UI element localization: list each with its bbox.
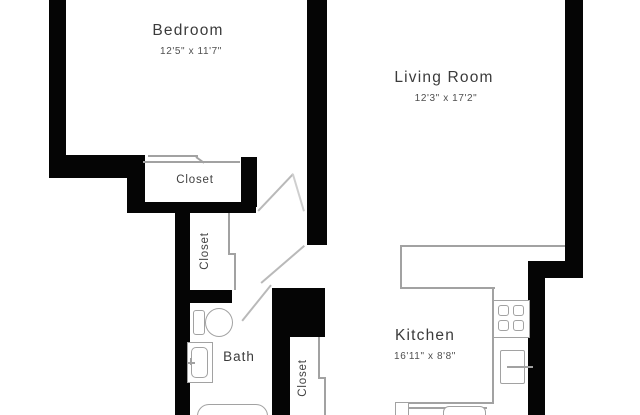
faucet-icon: [190, 358, 192, 365]
wall-kitchen-closet-left: [272, 288, 290, 415]
closet-door-line: [143, 161, 240, 163]
counter-end-cabinet: [395, 402, 409, 415]
burner-icon: [513, 320, 524, 331]
bedroom-dimensions: 12'5" x 11'7": [160, 46, 222, 57]
door-swing-living-hall: [257, 173, 293, 211]
counter-edge: [400, 287, 495, 289]
wall-bedroom-closet-right: [241, 157, 257, 207]
wall-kitchen-right: [528, 261, 545, 415]
door-swing-living-hall-arc: [292, 174, 305, 212]
wall-hall-left: [175, 207, 190, 415]
door-swing-kitchen-entry: [260, 245, 304, 283]
wall-living-right: [565, 0, 583, 278]
wall-bedroom-left: [49, 0, 66, 178]
closet-door-line: [318, 337, 320, 379]
living-room-label: Living Room: [394, 69, 493, 87]
burner-icon: [498, 305, 509, 316]
stove-icon: [493, 300, 530, 338]
toilet-bowl-icon: [205, 308, 233, 337]
bedroom-label: Bedroom: [152, 22, 223, 40]
floor-plan: Bedroom 12'5" x 11'7" Living Room 12'3" …: [0, 0, 640, 415]
bathtub-icon: [197, 404, 268, 415]
bath-label: Bath: [223, 349, 255, 364]
burner-icon: [513, 305, 524, 316]
wall-bath-top: [175, 290, 232, 303]
counter-edge: [408, 402, 493, 404]
burner-icon: [498, 320, 509, 331]
kitchen-label: Kitchen: [395, 327, 455, 345]
hall-closet-label: Closet: [199, 232, 211, 269]
counter-edge: [400, 245, 402, 289]
kitchen-dimensions: 16'11" x 8'8": [394, 351, 456, 362]
kitchen-closet-label: Closet: [297, 359, 309, 396]
counter-edge: [400, 245, 565, 247]
kitchen-appliance-handle: [507, 366, 533, 368]
wall-bedroom-living-divider: [307, 0, 327, 245]
closet-door-line: [228, 213, 230, 255]
door-swing-bath-entry: [241, 284, 271, 321]
closet-door-line: [148, 155, 198, 157]
bedroom-closet-label: Closet: [176, 174, 213, 186]
kitchen-sink-icon: [443, 406, 486, 415]
toilet-icon: [193, 310, 205, 335]
living-room-dimensions: 12'3" x 17'2": [415, 93, 478, 104]
closet-door-line: [324, 378, 326, 415]
closet-door-line: [234, 254, 236, 290]
wall-hall-top: [127, 202, 256, 213]
